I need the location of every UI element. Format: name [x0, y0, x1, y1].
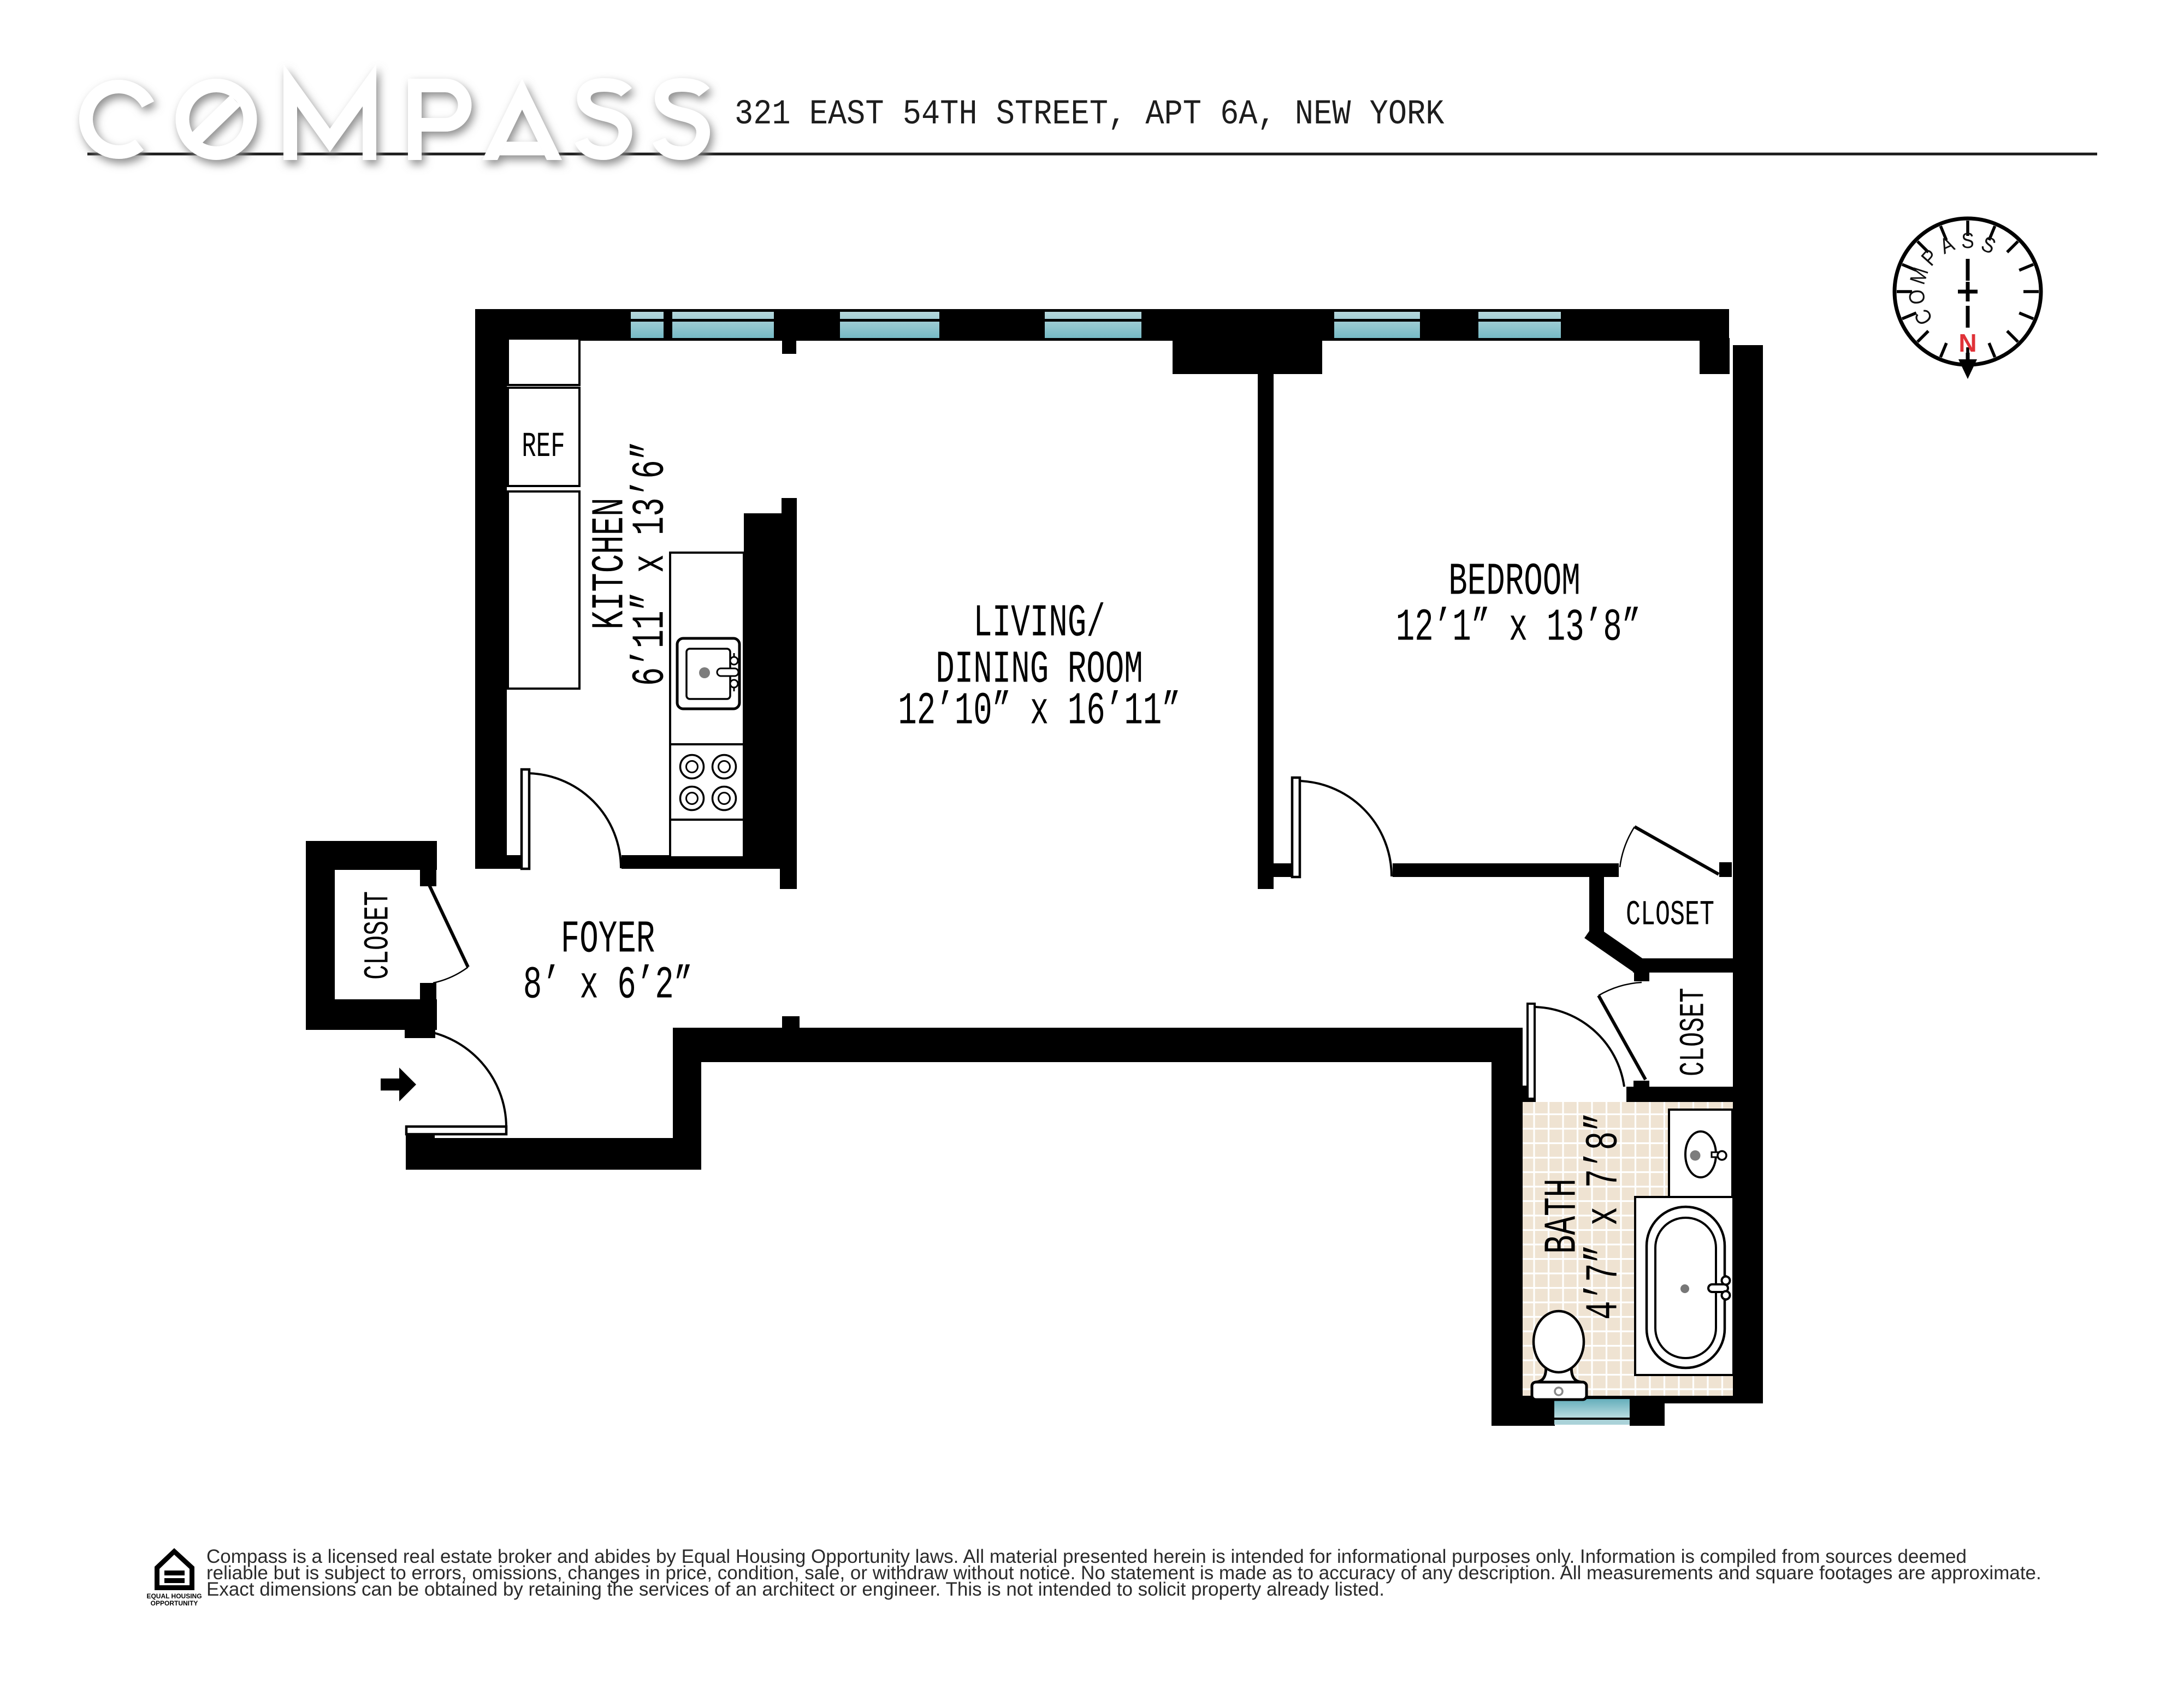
- svg-text:321 EAST 54TH STREET, APT 6A,: 321 EAST 54TH STREET, APT 6A, NEW YORK: [735, 95, 1445, 134]
- svg-text:CLOSET: CLOSET: [1626, 895, 1714, 935]
- svg-text:EQUAL HOUSING: EQUAL HOUSING: [146, 1592, 202, 1600]
- svg-text:CLOSET: CLOSET: [1674, 988, 1714, 1076]
- svg-text:S: S: [1961, 228, 1974, 253]
- svg-text:LIVING/: LIVING/: [973, 597, 1105, 650]
- svg-text:12’10” x 16’11”: 12’10” x 16’11”: [898, 685, 1180, 738]
- svg-text:REF: REF: [522, 427, 565, 466]
- svg-text:CLOSET: CLOSET: [358, 891, 398, 980]
- svg-text:FOYER: FOYER: [561, 914, 655, 966]
- svg-text:OPPORTUNITY: OPPORTUNITY: [151, 1599, 198, 1607]
- svg-text:O: O: [1904, 288, 1930, 306]
- svg-text:N: N: [1958, 329, 1976, 357]
- svg-text:Exact dimensions can be obtain: Exact dimensions can be obtained by reta…: [206, 1579, 1384, 1600]
- svg-text:8’ x 6’2”: 8’ x 6’2”: [523, 959, 693, 1012]
- svg-text:BEDROOM: BEDROOM: [1448, 556, 1580, 608]
- svg-text:12’1” x 13’8”: 12’1” x 13’8”: [1396, 602, 1641, 654]
- svg-text:4’7” x 7’8”: 4’7” x 7’8”: [1578, 1112, 1631, 1319]
- svg-text:6’11” x 13’6”: 6’11” x 13’6”: [625, 441, 677, 686]
